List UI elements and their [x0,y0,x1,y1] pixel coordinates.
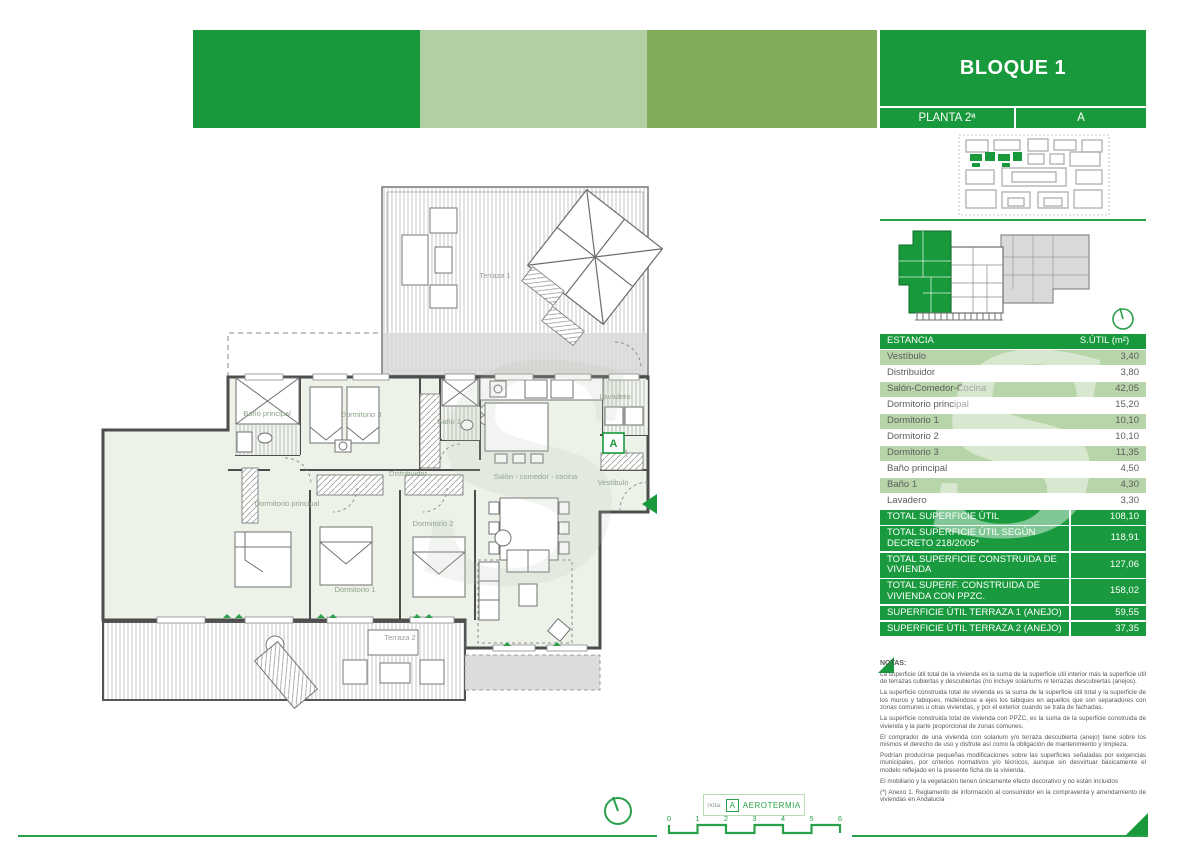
note-paragraph: La superficie útil total de la vivienda … [880,671,1146,686]
row-label: Baño 1 [880,478,1070,493]
total-value: 118,91 [1071,526,1146,551]
terraza-1 [382,187,662,375]
row-value: 4,30 [1070,478,1146,493]
note-paragraph: (*) Anexo 1. Reglamento de información a… [880,789,1146,804]
panel-divider-line [880,219,1146,221]
svg-text:1: 1 [695,814,699,823]
table-total-row: TOTAL SUPERFICIE ÚTIL108,10 [880,510,1146,525]
unit-label: A [1016,108,1146,128]
svg-text:3: 3 [752,814,756,823]
table-row: Dormitorio 210,10 [880,430,1146,445]
aerotermia-badge: A [603,433,624,453]
scale-bar: 0 1 2 3 4 5 6 [660,812,852,838]
row-label: Distribuidor [880,366,1070,381]
label-dormitorio-3: Dormitorio 3 [321,411,401,420]
svg-text:A: A [610,438,618,450]
note-paragraph: Podrían producirse pequeñas modificacion… [880,752,1146,774]
label-lavadero: Lavadero [585,393,645,402]
row-label: Dormitorio 2 [880,430,1070,445]
row-label: Dormitorio principal [880,398,1070,413]
label-terraza-2: Terraza 2 [365,634,435,643]
nota-label: nota: [707,802,721,809]
label-distribuidor: Distribuidor [377,470,439,479]
notes-title: NOTAS: [880,660,1146,667]
note-paragraph: La superficie construida total de vivien… [880,715,1146,730]
total-label: TOTAL SUPERFICIE ÚTIL [880,510,1071,525]
areas-table: ESTANCIA S.ÚTIL (m²) Vestíbulo3,40 Distr… [880,334,1146,638]
svg-text:2: 2 [724,814,728,823]
floor-label: PLANTA 2ª [880,108,1014,128]
label-dormitorio-2: Dormitorio 2 [395,520,471,529]
floorplan-sheet: A Terraza 1 Baño principal Dormitorio 3 … [0,0,1191,842]
top-bar-olive-green [647,30,877,128]
table-row: Distribuidor3,80 [880,366,1146,381]
row-label: Lavadero [880,494,1070,509]
footer-rule [852,835,1148,837]
note-paragraph: El mobiliario y la vegetación tienen úni… [880,778,1146,785]
top-bar-light-green [420,30,647,128]
note-paragraph: El comprador de una vivienda con solariu… [880,734,1146,749]
header-sutil: S.ÚTIL (m²) [1070,334,1141,349]
note-paragraph: La superficie construida total de vivien… [880,689,1146,711]
total-label: SUPERFICIE ÚTIL TERRAZA 2 (ANEJO) [880,622,1071,637]
aerotermia-text: AEROTERMIA [743,801,801,810]
row-label: Dormitorio 1 [880,414,1070,429]
total-label: TOTAL SUPERFICIE ÚTIL SEGÚN DECRETO 218/… [880,526,1071,551]
svg-text:6: 6 [838,814,842,823]
total-value: 158,02 [1071,579,1146,604]
plot-dashed-boundary [228,333,382,377]
svg-text:5: 5 [809,814,813,823]
table-row: Dormitorio principal15,20 [880,398,1146,413]
label-vestibulo: Vestíbulo [585,479,641,488]
site-plan-thumbnail [958,134,1110,216]
row-value: 3,40 [1070,350,1146,365]
floor-unit-row: PLANTA 2ª A [880,108,1146,128]
table-total-row: TOTAL SUPERFICIE ÚTIL SEGÚN DECRETO 218/… [880,526,1146,551]
label-salon: Salón - comedor - cocina [473,473,598,482]
floor-key-plan [893,227,1103,323]
table-row: Dormitorio 311,35 [880,446,1146,461]
aerotermia-badge-icon: A [726,799,739,812]
table-row: Salón-Comedor-Cocina42,05 [880,382,1146,397]
label-dormitorio-1: Dormitorio 1 [317,586,393,595]
row-label: Dormitorio 3 [880,446,1070,461]
table-row: Dormitorio 110,10 [880,414,1146,429]
total-label: TOTAL SUPERFICIE CONSTRUIDA DE VIVIENDA [880,553,1071,578]
total-label: TOTAL SUPERF. CONSTRUIDA DE VIVIENDA CON… [880,579,1071,604]
table-row: Lavadero3,30 [880,494,1146,509]
row-value: 42,05 [1070,382,1146,397]
row-label: Salón-Comedor-Cocina [880,382,1070,397]
table-total-row: SUPERFICIE ÚTIL TERRAZA 2 (ANEJO)37,35 [880,622,1146,637]
total-label: SUPERFICIE ÚTIL TERRAZA 1 (ANEJO) [880,606,1071,621]
total-value: 108,10 [1071,510,1146,525]
total-value: 59,55 [1071,606,1146,621]
table-row: Vestíbulo3,40 [880,350,1146,365]
north-compass-icon [600,792,636,828]
table-total-row: TOTAL SUPERFICIE CONSTRUIDA DE VIVIENDA1… [880,553,1146,578]
footer-rule [18,835,657,837]
floor-plan-drawing: A [95,182,867,712]
corner-fold-icon [1126,813,1148,835]
table-row: Baño principal4,50 [880,462,1146,477]
north-compass-icon [1108,303,1138,333]
notes-section: NOTAS: La superficie útil total de la vi… [880,660,1146,807]
row-label: Vestíbulo [880,350,1070,365]
block-title: BLOQUE 1 [880,30,1146,106]
label-dormitorio-principal: Dormitorio principal [250,500,324,509]
svg-text:4: 4 [781,814,785,823]
label-bano-1: Baño 1 [427,418,471,427]
svg-text:0: 0 [667,814,671,823]
top-bar-dark-green [193,30,420,128]
row-value: 15,20 [1070,398,1146,413]
table-total-row: SUPERFICIE ÚTIL TERRAZA 1 (ANEJO)59,55 [880,606,1146,621]
total-value: 127,06 [1071,553,1146,578]
row-value: 4,50 [1070,462,1146,477]
table-header-row: ESTANCIA S.ÚTIL (m²) [880,334,1146,349]
row-value: 3,80 [1070,366,1146,381]
row-value: 10,10 [1070,414,1146,429]
floor-plan: A Terraza 1 Baño principal Dormitorio 3 … [95,182,867,712]
row-label: Baño principal [880,462,1070,477]
total-value: 37,35 [1071,622,1146,637]
label-bano-principal: Baño principal [237,410,297,419]
table-row: Baño 14,30 [880,478,1146,493]
row-value: 3,30 [1070,494,1146,509]
label-terraza-1: Terraza 1 [455,272,535,281]
table-total-row: TOTAL SUPERF. CONSTRUIDA DE VIVIENDA CON… [880,579,1146,604]
row-value: 10,10 [1070,430,1146,445]
header-estancia: ESTANCIA [880,334,1070,349]
row-value: 11,35 [1070,446,1146,461]
